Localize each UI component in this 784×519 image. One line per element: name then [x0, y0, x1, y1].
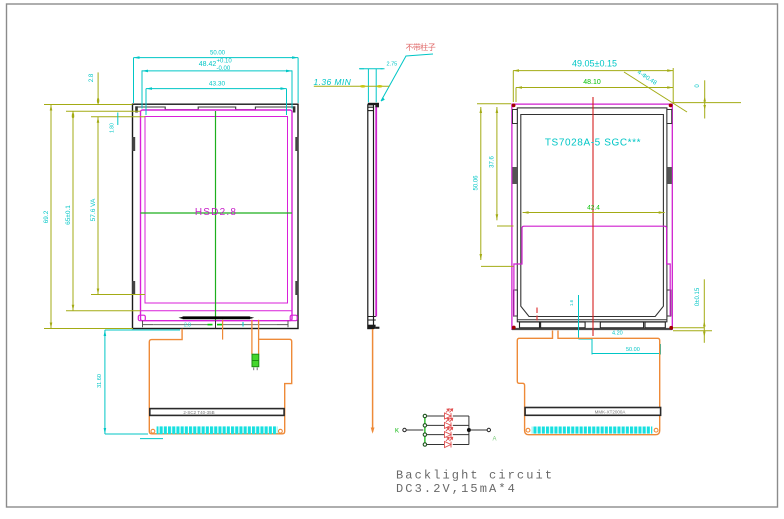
svg-text:65±0.1: 65±0.1	[65, 205, 72, 225]
svg-text:Backlight circuit: Backlight circuit	[396, 469, 554, 483]
svg-text:48.42: 48.42	[199, 61, 217, 68]
svg-text:31.60: 31.60	[97, 374, 103, 388]
svg-text:50.00: 50.00	[210, 51, 226, 57]
svg-text:不带柱子: 不带柱子	[406, 42, 436, 52]
svg-text:1.80: 1.80	[110, 123, 116, 133]
svg-text:57.6 VA: 57.6 VA	[90, 198, 97, 221]
svg-text:50.06: 50.06	[474, 175, 480, 191]
svg-text:2.8: 2.8	[184, 323, 191, 329]
svg-text:69.2: 69.2	[43, 210, 50, 223]
svg-text:2.8: 2.8	[89, 73, 95, 82]
svg-text:+0.10: +0.10	[217, 58, 233, 64]
svg-text:2-SC2 T40-35B: 2-SC2 T40-35B	[183, 410, 214, 415]
svg-text:48.10: 48.10	[583, 79, 601, 86]
svg-text:37.6: 37.6	[490, 156, 496, 168]
svg-text:2.75: 2.75	[387, 62, 398, 68]
svg-text:50.00: 50.00	[626, 347, 640, 353]
svg-text:HSD2.8: HSD2.8	[195, 207, 237, 218]
svg-text:49.05±0.15: 49.05±0.15	[572, 59, 617, 69]
svg-text:-0.00: -0.00	[217, 66, 231, 72]
svg-text:4.20: 4.20	[612, 331, 623, 337]
svg-text:K: K	[395, 429, 399, 435]
svg-text:42.4: 42.4	[587, 205, 600, 212]
svg-text:DC3.2V,15mA*4: DC3.2V,15mA*4	[396, 482, 517, 496]
svg-text:TS7028A-5 SGC***: TS7028A-5 SGC***	[545, 138, 641, 149]
svg-text:A: A	[493, 437, 497, 443]
svg-text:MMK-XT2000A: MMK-XT2000A	[595, 410, 626, 415]
svg-text:0±0.15: 0±0.15	[695, 287, 701, 306]
svg-text:1.6: 1.6	[569, 299, 574, 306]
svg-text:43.30: 43.30	[209, 80, 226, 87]
svg-text:1.36 MIN: 1.36 MIN	[314, 77, 352, 87]
